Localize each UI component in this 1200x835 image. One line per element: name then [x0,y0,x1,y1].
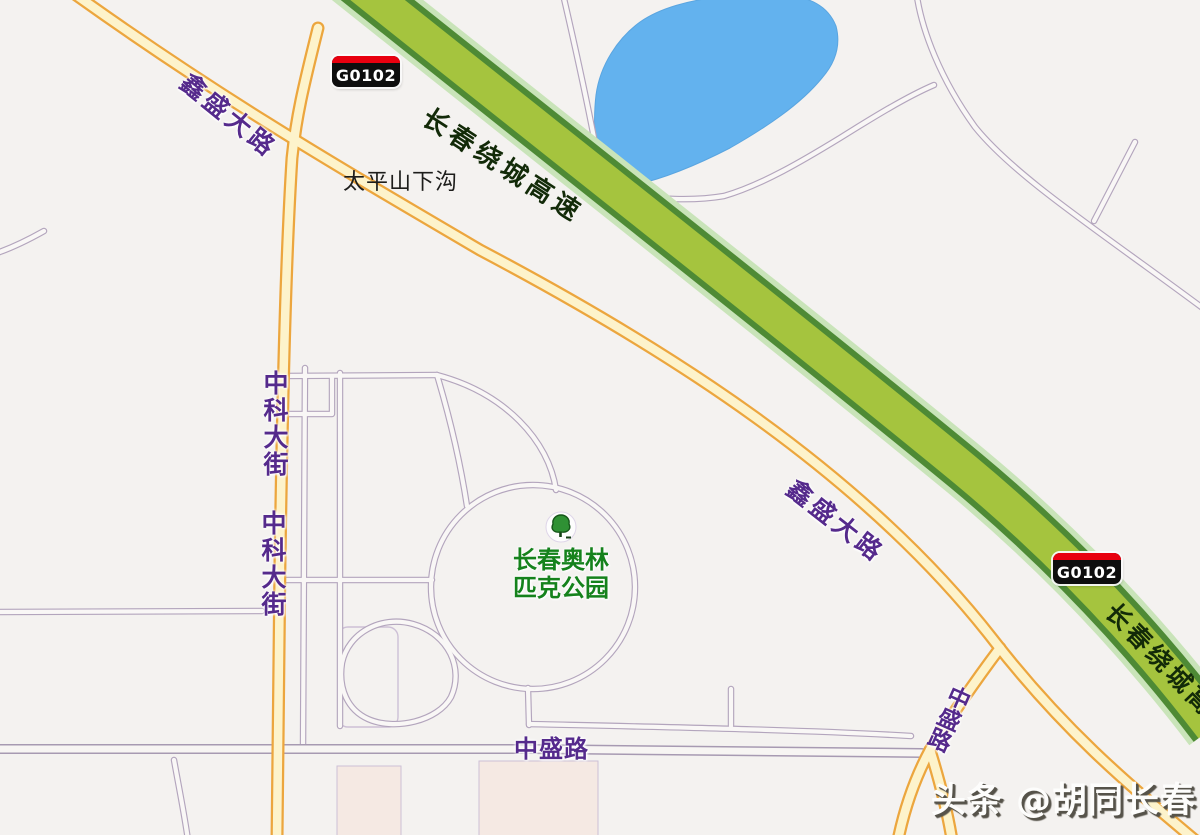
highway-shield-g0102-right: G0102 [1053,553,1121,584]
watermark-text: 头条 @胡同长春 [931,772,1196,823]
street-fill [0,749,922,753]
parcel-block [479,761,598,835]
parcel-blocks [337,627,598,835]
parcel-outline [338,627,398,727]
parcel-block [337,766,401,835]
map-canvas[interactable]: 鑫盛大路 鑫盛大路 中科大街 中科大街 中盛路 中盛路 太平山下沟 长春绕城高速… [0,0,1200,835]
shield-code: G0102 [332,63,400,87]
shield-code: G0102 [1053,560,1121,584]
highway-shield-g0102-top: G0102 [332,56,400,87]
park-tree-icon [542,510,582,550]
shield-red-band [1053,553,1121,560]
map-roads-layer [0,0,1200,835]
shield-red-band [332,56,400,63]
